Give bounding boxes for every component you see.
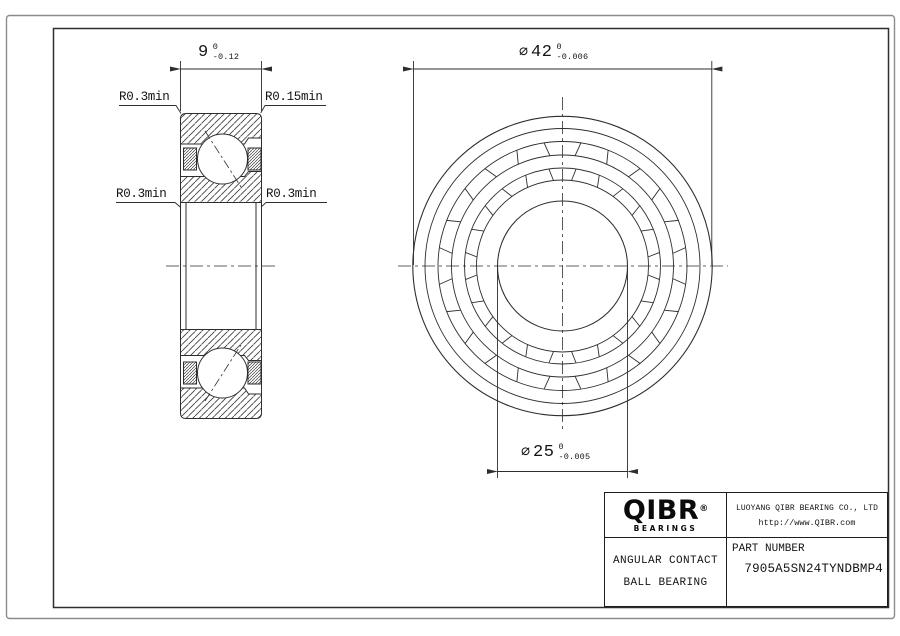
od-tolerance: 0 -0.006 bbox=[556, 43, 588, 62]
part-number-cell: PART NUMBER 7905A5SN24TYNDBMP4 bbox=[727, 538, 887, 606]
bore-tolerance: 0 -0.005 bbox=[558, 443, 590, 462]
width-value: 9 bbox=[198, 44, 209, 62]
cage-section-bottom-left bbox=[184, 362, 197, 384]
registered-mark-icon: ® bbox=[699, 496, 708, 522]
part-number-label: PART NUMBER bbox=[732, 542, 883, 557]
leader-top-left bbox=[119, 106, 181, 114]
leader-bottom-right bbox=[261, 203, 327, 208]
drawing-sheet: 9 0 -0.12 ⌀ 42 0 -0.006 ⌀ 25 0 -0.005 R0… bbox=[0, 0, 900, 636]
company-website: http://www.QIBR.com bbox=[759, 516, 856, 530]
title-block: QIBR ® BEARINGS LUOYANG QIBR BEARING CO.… bbox=[604, 492, 888, 607]
part-number-value: 7905A5SN24TYNDBMP4 bbox=[732, 560, 883, 578]
diameter-symbol: ⌀ bbox=[521, 444, 530, 462]
product-cell: ANGULAR CONTACT BALL BEARING bbox=[605, 538, 727, 606]
od-value: 42 bbox=[531, 44, 552, 62]
logo-text: QIBR bbox=[623, 498, 699, 524]
logo: QIBR ® bbox=[623, 498, 708, 524]
radius-label-bottom-left: R0.3min bbox=[116, 187, 166, 201]
extension-lines-width bbox=[181, 61, 262, 111]
product-line1: ANGULAR CONTACT bbox=[613, 550, 718, 572]
logo-cell: QIBR ® BEARINGS bbox=[605, 493, 727, 538]
cage-section-top-left bbox=[184, 148, 197, 170]
ball-top bbox=[198, 134, 248, 184]
bore-value: 25 bbox=[533, 444, 554, 462]
radius-label-bottom-right: R0.3min bbox=[266, 187, 316, 201]
leader-top-right bbox=[261, 106, 326, 114]
company-name: LUOYANG QIBR BEARING CO., LTD bbox=[736, 501, 878, 516]
leader-bottom-left bbox=[116, 203, 181, 208]
company-cell: LUOYANG QIBR BEARING CO., LTD http://www… bbox=[727, 493, 887, 538]
ball-bottom bbox=[198, 348, 248, 398]
bore-dimension-text: ⌀ 25 0 -0.005 bbox=[521, 444, 590, 462]
od-dimension-text: ⌀ 42 0 -0.006 bbox=[519, 44, 588, 62]
product-line2: BALL BEARING bbox=[623, 572, 707, 594]
cage-section-bottom-right bbox=[248, 362, 261, 384]
radius-label-top-right: R0.15min bbox=[265, 90, 323, 104]
logo-subtext: BEARINGS bbox=[634, 524, 698, 533]
width-tolerance: 0 -0.12 bbox=[213, 43, 240, 62]
diameter-symbol: ⌀ bbox=[519, 44, 528, 62]
section-view bbox=[116, 61, 327, 419]
cage-section-top-right bbox=[248, 148, 261, 170]
width-dimension-text: 9 0 -0.12 bbox=[198, 44, 239, 62]
width-dimension bbox=[181, 61, 262, 111]
front-view bbox=[398, 61, 728, 478]
radius-label-top-left: R0.3min bbox=[119, 90, 169, 104]
